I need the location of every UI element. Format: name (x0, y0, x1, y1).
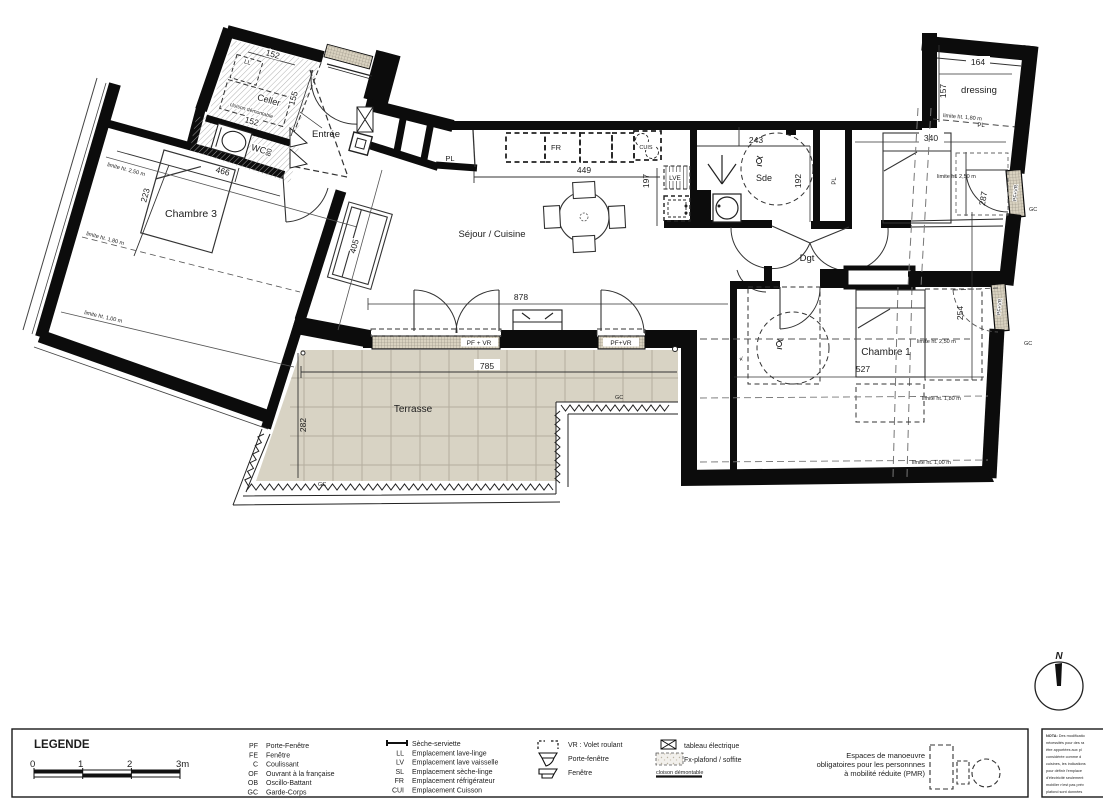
svg-text:SL: SL (395, 769, 404, 776)
svg-text:LVE: LVE (669, 175, 681, 182)
svg-text:considérée comme d: considérée comme d (1046, 755, 1081, 759)
svg-text:GC: GC (615, 395, 623, 401)
svg-text:nécessités pour des ra: nécessités pour des ra (1046, 741, 1085, 745)
svg-text:cuisines, les indications: cuisines, les indications (1046, 762, 1086, 766)
svg-text:dressing: dressing (961, 85, 997, 96)
svg-text:GC: GC (248, 790, 259, 797)
svg-text:340: 340 (924, 133, 938, 143)
svg-text:Terrasse: Terrasse (394, 404, 433, 415)
svg-text:PL: PL (832, 177, 838, 185)
svg-text:Fenêtre: Fenêtre (266, 752, 290, 759)
svg-text:Entrée: Entrée (312, 129, 340, 140)
svg-text:GC: GC (1024, 341, 1032, 347)
svg-text:CUIS: CUIS (639, 145, 652, 151)
svg-text:878: 878 (514, 292, 528, 302)
svg-text:NOTA: Des modificatio: NOTA: Des modificatio (1046, 734, 1085, 738)
svg-text:Garde-Corps: Garde-Corps (266, 790, 307, 797)
svg-text:282: 282 (298, 418, 308, 432)
svg-text:VR : Volet roulant: VR : Volet roulant (568, 742, 623, 749)
svg-text:PF + VR: PF + VR (467, 340, 492, 347)
svg-text:FR: FR (551, 143, 562, 152)
svg-text:192: 192 (793, 174, 803, 188)
svg-text:OB: OB (248, 780, 258, 787)
svg-text:Chambre 1: Chambre 1 (861, 347, 911, 358)
svg-text:mobilier n'est pas prév: mobilier n'est pas prév (1046, 783, 1084, 787)
svg-text:PL: PL (977, 123, 985, 129)
svg-text:Fx-plafond / soffite: Fx-plafond / soffite (684, 757, 742, 764)
svg-text:197: 197 (641, 174, 651, 188)
svg-text:Porte-fenêtre: Porte-fenêtre (568, 756, 609, 763)
svg-text:Emplacement réfrigérateur: Emplacement réfrigérateur (412, 778, 496, 785)
svg-text:tableau électrique: tableau électrique (684, 743, 739, 750)
svg-text:FR: FR (395, 778, 404, 785)
svg-text:254: 254 (955, 306, 965, 320)
svg-text:PF: PF (249, 743, 258, 750)
svg-text:527: 527 (856, 364, 870, 374)
svg-text:LEGENDE: LEGENDE (34, 739, 90, 751)
svg-text:Sde: Sde (756, 173, 772, 183)
svg-text:3m: 3m (176, 759, 189, 770)
svg-text:obligatoires pour les personnn: obligatoires pour les personnnes (817, 760, 926, 769)
svg-text:d'électricité seulement: d'électricité seulement (1046, 776, 1084, 780)
svg-text:PF+VR: PF+VR (610, 340, 631, 347)
svg-text:OF: OF (248, 771, 258, 778)
svg-text:LV: LV (396, 760, 404, 767)
svg-text:à mobilité réduite (PMR): à mobilité réduite (PMR) (844, 769, 925, 778)
svg-text:Emplacement sèche-linge: Emplacement sèche-linge (412, 769, 493, 776)
svg-text:Coulissant: Coulissant (266, 762, 299, 769)
svg-text:164: 164 (971, 57, 985, 67)
svg-text:limite ht. 1,00 m: limite ht. 1,00 m (912, 460, 951, 466)
svg-text:plafond sont données: plafond sont données (1046, 790, 1082, 794)
svg-text:Porte-Fenêtre: Porte-Fenêtre (266, 743, 309, 750)
svg-text:Sèche-serviette: Sèche-serviette (412, 741, 461, 748)
svg-text:pour définir l'emplace: pour définir l'emplace (1046, 769, 1082, 773)
svg-text:Fenêtre: Fenêtre (568, 770, 592, 777)
svg-text:N: N (1055, 651, 1063, 662)
svg-text:Emplacement Cuisson: Emplacement Cuisson (412, 788, 482, 795)
svg-text:449: 449 (577, 165, 591, 175)
svg-text:cloison démontable: cloison démontable (656, 770, 703, 776)
svg-text:0: 0 (30, 759, 35, 770)
svg-text:Oscillo-Battant: Oscillo-Battant (266, 780, 312, 787)
svg-text:Emplacement lave-linge: Emplacement lave-linge (412, 750, 487, 757)
svg-text:LL: LL (396, 750, 404, 757)
svg-text:CUI: CUI (392, 788, 404, 795)
svg-text:157: 157 (938, 84, 948, 98)
svg-text:Dgt: Dgt (800, 253, 815, 264)
svg-text:Chambre 3: Chambre 3 (165, 208, 217, 220)
svg-text:Ouvrant à la française: Ouvrant à la française (266, 771, 335, 778)
svg-text:limite ht. 1,80 m: limite ht. 1,80 m (922, 396, 961, 402)
svg-text:FE: FE (249, 752, 258, 759)
svg-text:limite ht. 2,50 m: limite ht. 2,50 m (917, 339, 956, 345)
svg-text:Espaces de manoeuvre: Espaces de manoeuvre (846, 751, 925, 760)
svg-text:être apportées aux pl: être apportées aux pl (1046, 748, 1082, 752)
svg-text:785: 785 (480, 361, 494, 371)
svg-text:GC: GC (1029, 207, 1037, 213)
svg-text:C: C (253, 762, 258, 769)
svg-text:PL: PL (445, 154, 454, 163)
svg-text:Emplacement lave vaisselle: Emplacement lave vaisselle (412, 760, 498, 767)
svg-text:Séjour / Cuisine: Séjour / Cuisine (458, 229, 525, 240)
svg-text:limite ht. 2,50 m: limite ht. 2,50 m (937, 174, 976, 180)
